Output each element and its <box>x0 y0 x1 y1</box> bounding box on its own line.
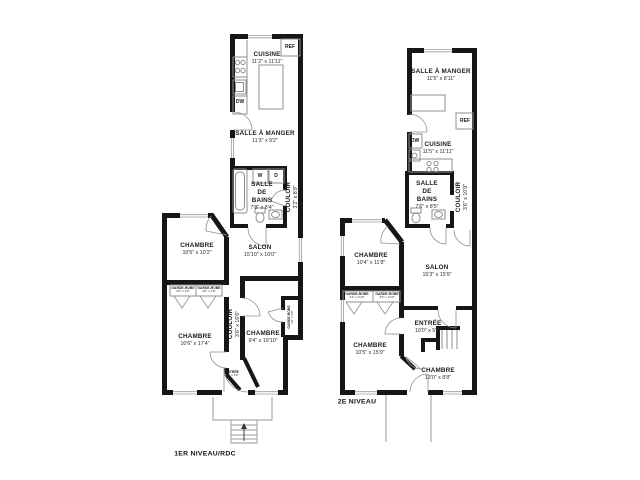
room-label-salon-right: SALON 15'3" x 15'9" <box>422 264 451 278</box>
room-label-closet1-left: GARDE-ROBE 4'0" x 1'9" <box>171 286 194 294</box>
room-label-cuisine-left: CUISINE 11'2" x 11'11" <box>252 51 283 65</box>
porch-stairs-left <box>213 397 272 443</box>
room-label-bedroom1-right: CHAMBRE 10'4" x 11'8" <box>354 252 388 266</box>
room-label-entry-left: ENTRÉE 4'0" x 3'6" <box>225 370 239 378</box>
floor-plan-svg <box>0 0 640 480</box>
room-label-dining-left: SALLE À MANGER 11'3" x 9'2" <box>235 130 294 144</box>
washer-label-left: W <box>258 173 263 179</box>
floor-plan-canvas: CUISINE 11'2" x 11'11" SALLE À MANGER 11… <box>0 0 640 480</box>
room-label-bedroom2-right: CHAMBRE 10'5" x 15'9" <box>353 342 387 356</box>
room-label-cuisine-right: CUISINE 11'5" x 11'11" <box>423 141 454 155</box>
level-label-first-floor: 1ER NIVEAU/RDC <box>174 451 236 458</box>
counter-right <box>411 95 445 111</box>
level-label-second-floor: 2E NIVEAU <box>338 399 377 406</box>
stairs-arrow <box>241 423 247 441</box>
room-label-closet2-left: GARDE-ROBE 4'0" x 1'9" <box>197 286 220 294</box>
room-label-closet1-right: GARDE-ROBE 4'1" x 2'10" <box>345 292 368 300</box>
dryer-label-left: D <box>274 173 278 179</box>
room-label-entry-right: ENTRÉE 10'0" x 5'0" <box>415 320 442 334</box>
room-label-closet2-right: GARDE-ROBE 3'9" x 2'10" <box>375 292 398 300</box>
room-label-bedroom3-left: CHAMBRE 9'4" x 19'10" <box>246 330 280 344</box>
deck-lines-right <box>386 395 431 442</box>
room-label-dining-right: SALLE À MANGER 11'5" x 8'11" <box>411 68 470 82</box>
room-label-salon-left: SALON 15'10" x 10'0" <box>244 244 276 258</box>
fridge-label-left: REF <box>285 44 295 50</box>
room-label-bedroom1-left: CHAMBRE 10'5" x 10'2" <box>180 242 214 256</box>
room-label-bathroom-right: SALLE DE BAINS 7'6" x 8'5" <box>412 180 442 210</box>
dishwasher-label-right: DW <box>411 138 419 144</box>
room-label-bedroom2-left: CHAMBRE 10'6" x 17'4" <box>178 333 212 347</box>
dishwasher-label-left: DW <box>236 99 244 105</box>
fridge-label-right: REF <box>460 118 470 124</box>
room-label-bathroom-left: SALLE DE BAINS 7'8" x 8'4" <box>247 181 277 211</box>
room-label-closet-niche-left: GARDE-ROBE 2'6" x 4'8" <box>287 305 295 328</box>
island-left <box>259 65 283 109</box>
stove-left <box>233 57 247 77</box>
room-label-hallway-right: COULOIR 3'6" x 10'9" <box>455 182 469 212</box>
room-label-hallway-upper-left: COULOIR 3'2" x 8'9" <box>285 182 299 212</box>
room-label-hallway-lower-left: COULOIR 3'6" x 16'6" <box>227 309 241 339</box>
room-label-bedroom3-right: CHAMBRE 13'0" x 8'8" <box>421 367 455 381</box>
diagonal-walls-left <box>211 214 258 390</box>
